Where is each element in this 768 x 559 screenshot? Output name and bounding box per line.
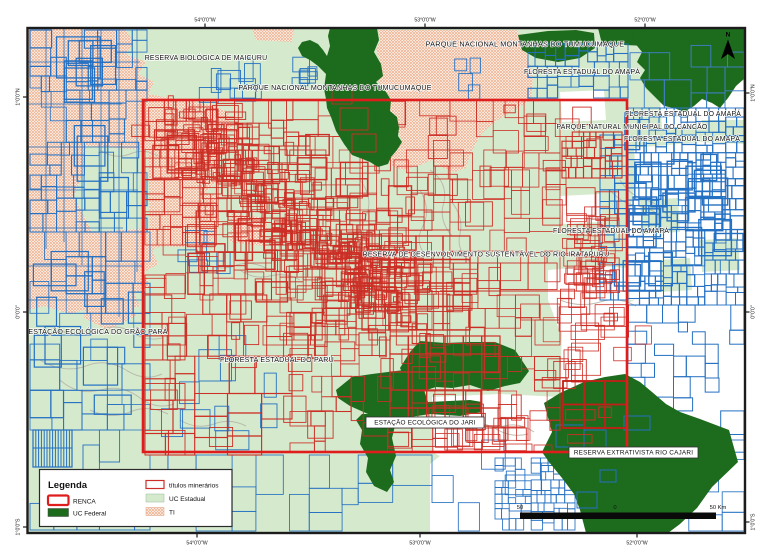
svg-text:RESERVA DE DESENVOLVIMENTO SUS: RESERVA DE DESENVOLVIMENTO SUSTENTÁVEL D…	[363, 250, 610, 259]
svg-text:FLORESTA ESTADUAL DO AMAPÁ: FLORESTA ESTADUAL DO AMAPÁ	[524, 67, 640, 76]
svg-text:54°0'0"W: 54°0'0"W	[194, 18, 215, 24]
svg-text:FLORESTA ESTADUAL DO AMAPÁ: FLORESTA ESTADUAL DO AMAPÁ	[625, 109, 741, 118]
svg-text:0: 0	[613, 505, 616, 511]
svg-text:UC Estadual: UC Estadual	[169, 496, 206, 503]
svg-text:1°0'0"S: 1°0'0"S	[751, 513, 757, 531]
svg-text:FLORESTA ESTADUAL DO AMAPÁ: FLORESTA ESTADUAL DO AMAPÁ	[553, 226, 669, 235]
svg-text:ESTAÇÃO ECOLÓGICA DO GRÃO PARÁ: ESTAÇÃO ECOLÓGICA DO GRÃO PARÁ	[28, 327, 167, 336]
svg-text:52°0'0"W: 52°0'0"W	[634, 18, 655, 24]
svg-text:RESERVA EXTRATIVISTA RIO CAJAR: RESERVA EXTRATIVISTA RIO CAJARI	[574, 450, 693, 457]
svg-text:FLORESTA ESTADUAL DO PARU: FLORESTA ESTADUAL DO PARU	[220, 356, 334, 364]
svg-text:1°0'0"S: 1°0'0"S	[16, 518, 22, 536]
svg-text:N: N	[726, 32, 731, 39]
svg-text:FLORESTA ESTADUAL DO AMAPÁ: FLORESTA ESTADUAL DO AMAPÁ	[624, 134, 740, 143]
svg-text:Legenda: Legenda	[48, 480, 88, 491]
svg-text:TI: TI	[169, 510, 175, 517]
svg-text:PARQUE NACIONAL MONTANHAS DO T: PARQUE NACIONAL MONTANHAS DO TUMUCUMAQUE	[238, 84, 431, 92]
svg-text:1°0'0"N: 1°0'0"N	[16, 88, 22, 106]
svg-text:54°0'0"W: 54°0'0"W	[186, 541, 207, 547]
svg-text:0°0'0": 0°0'0"	[16, 305, 22, 319]
svg-text:52°0'0"W: 52°0'0"W	[626, 541, 647, 547]
svg-text:53°0'0"W: 53°0'0"W	[414, 18, 435, 24]
svg-text:RENCA: RENCA	[73, 499, 96, 506]
svg-text:1°0'0"N: 1°0'0"N	[751, 84, 757, 102]
svg-text:ESTAÇÃO ECOLÓGICA DO JARI: ESTAÇÃO ECOLÓGICA DO JARI	[374, 418, 475, 427]
svg-text:RESERVA BIOLÓGICA DE MAICURU: RESERVA BIOLÓGICA DE MAICURU	[145, 53, 268, 62]
svg-text:PARQUE NATURAL MUNICIPAL DO CA: PARQUE NATURAL MUNICIPAL DO CANCÃO	[556, 122, 707, 131]
svg-text:títulos minerários: títulos minerários	[169, 483, 219, 490]
svg-text:50 Km: 50 Km	[710, 505, 727, 511]
svg-text:0°0'0": 0°0'0"	[751, 305, 757, 319]
svg-text:PARQUE NACIONAL MONTANHAS DO T: PARQUE NACIONAL MONTANHAS DO TUMUCUMAQUE	[426, 40, 625, 49]
svg-text:UC Federal: UC Federal	[73, 511, 107, 518]
svg-text:50: 50	[517, 505, 523, 511]
svg-text:53°0'0"W: 53°0'0"W	[409, 541, 430, 547]
